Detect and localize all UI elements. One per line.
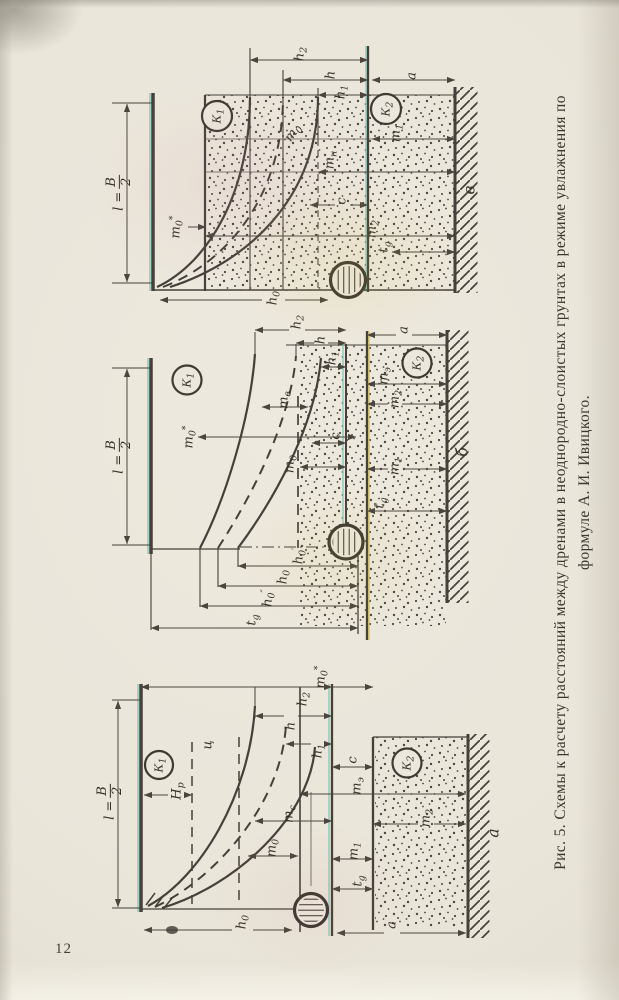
dim-label-m1: m1 xyxy=(389,457,402,475)
dim-label-mn: mн xyxy=(324,151,337,170)
dim-label-mc: mс xyxy=(283,805,296,823)
ground-hatching xyxy=(449,330,469,603)
layer-label-k1: К1 xyxy=(211,109,223,124)
dim-label-tg: tg xyxy=(352,875,365,886)
dim-label-l-b2: l =B2 xyxy=(105,175,133,211)
dim-label-mv: mв xyxy=(278,391,291,409)
dim-label-m0: m0 xyxy=(284,455,297,473)
dim-label-hp: Hp xyxy=(171,782,184,799)
dim-label-m1: m1 xyxy=(390,124,403,142)
dim-label-tg: tg xyxy=(378,241,391,252)
dim-label-h0-prime: h0′ xyxy=(293,548,306,564)
page-number: 12 xyxy=(55,941,72,958)
subfigure-label-v: в xyxy=(462,185,478,194)
soil-stipple xyxy=(205,95,455,291)
dim-label-m0-star: m0* xyxy=(170,216,183,239)
dim-label-m1: m1 xyxy=(348,842,361,860)
dim-label-h: h xyxy=(315,336,328,344)
layer-label-k2: К2 xyxy=(380,102,392,117)
figure-caption-line1: Рис. 5. Схемы к расчету расстояний между… xyxy=(549,25,573,940)
figure-caption-line2: формуле А. И. Ивицкого. xyxy=(573,25,597,940)
dim-label-c: c xyxy=(336,197,349,204)
ink-blot xyxy=(166,926,178,934)
dim-label-me: mэ xyxy=(378,367,391,385)
subfigure-label-b: б xyxy=(455,447,471,456)
dim-label-l-b2: l =B2 xyxy=(96,784,124,820)
diagram-b xyxy=(112,330,469,640)
dim-label-tg-bottom: tg xyxy=(246,614,259,625)
dim-label-c: c xyxy=(330,432,343,439)
layer-label-k2: К2 xyxy=(401,756,413,771)
dim-label-h0: h0 xyxy=(277,570,290,584)
dim-label-m0-star: m0* xyxy=(183,426,196,449)
figure-caption: Рис. 5. Схемы к расчету расстояний между… xyxy=(549,25,601,940)
dim-label-m2: m2 xyxy=(366,220,379,238)
dim-label-a: a xyxy=(386,921,399,929)
dim-label-c: c xyxy=(347,756,360,763)
dim-label-a: a xyxy=(406,72,419,80)
diagram-v xyxy=(112,46,478,300)
dim-label-h1: h1 xyxy=(326,351,339,365)
drain-pipe xyxy=(331,263,366,298)
dim-label-h0-dblprime: h0″ xyxy=(262,589,275,607)
layer-label-k1: К1 xyxy=(153,758,165,773)
dim-label-l-b2: l =B2 xyxy=(105,438,133,474)
scanned-book-page: .ln{stroke:#45413a;fill:none;} .dim{stro… xyxy=(0,0,619,1000)
curve-label-ts: ц xyxy=(202,740,215,749)
dim-label-h: h xyxy=(325,71,338,79)
soil-stipple xyxy=(300,345,446,626)
dim-label-m2: m2 xyxy=(420,809,433,827)
dim-label-h1: h1 xyxy=(335,85,348,99)
dim-label-h0: h0 xyxy=(267,291,280,305)
dim-label-tg: tg xyxy=(374,497,387,508)
dim-label-m2: m2 xyxy=(389,390,402,408)
dim-label-m0-star: m0* xyxy=(315,666,328,689)
dim-label-me: mэ xyxy=(351,777,364,795)
dim-label-h: h xyxy=(285,722,298,730)
dim-label-h2: h2 xyxy=(291,315,304,329)
dim-label-h1: h1 xyxy=(312,744,325,758)
drain-pipe xyxy=(329,525,363,559)
drain-pipe xyxy=(295,894,328,927)
layer-label-k2: К2 xyxy=(411,356,423,371)
dim-label-h2: h2 xyxy=(297,692,310,706)
dim-label-h0: h0 xyxy=(236,915,249,929)
dim-label-m0: m0 xyxy=(266,839,279,857)
figure-5-graphics: .ln{stroke:#45413a;fill:none;} .dim{stro… xyxy=(0,0,619,1000)
layer-label-k1: К1 xyxy=(181,373,193,388)
subfigure-label-a: а xyxy=(486,828,502,837)
dim-label-a: a xyxy=(398,326,411,334)
dim-label-h2: h2 xyxy=(294,47,307,61)
